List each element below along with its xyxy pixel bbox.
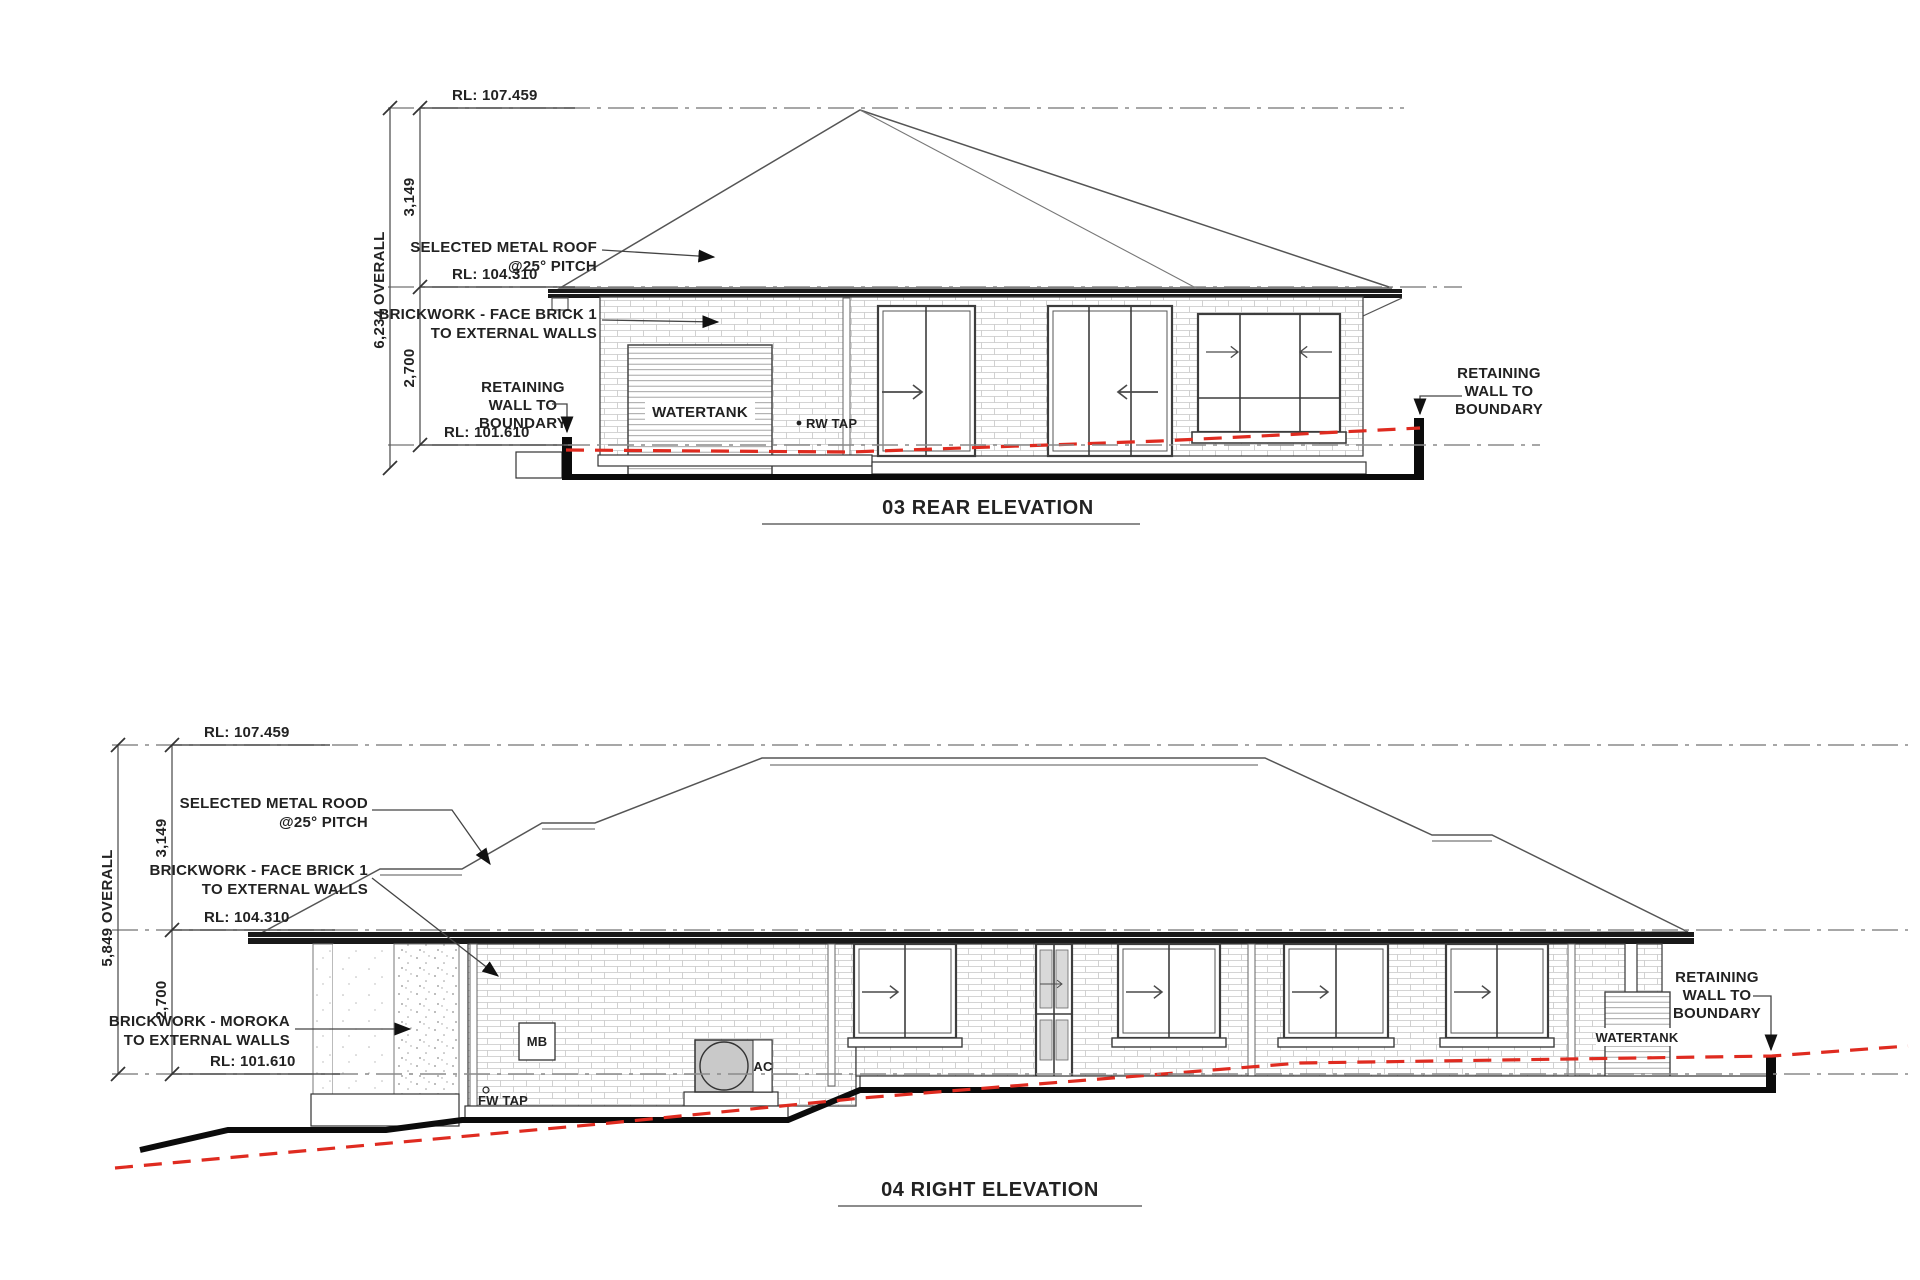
right-elevation-title: 04 RIGHT ELEVATION [881, 1179, 1099, 1201]
right-downpipe-4 [1568, 944, 1575, 1086]
right-porch-pier-left [313, 944, 333, 1094]
right-moroka-pier [394, 944, 459, 1094]
right-meter-box-label: MB [527, 1034, 548, 1049]
right-roof [252, 758, 1688, 938]
right-watertank: WATERTANK [1596, 992, 1679, 1086]
right-rl-bot-label: RL: 101.610 [210, 1053, 296, 1070]
right-ac-unit: AC [684, 1040, 778, 1106]
rear-dim-lower: 2,700 [401, 348, 418, 387]
right-window-d [1440, 944, 1554, 1047]
right-retaining-label-1: RETAINING [1675, 969, 1759, 986]
rear-soffit-right [1363, 298, 1402, 316]
rear-dim-overall: 6,234 OVERALL [371, 231, 388, 348]
right-meter-box: MB [519, 1023, 555, 1060]
right-downpipe-2 [828, 944, 835, 1086]
rear-roof-label-1: SELECTED METAL ROOF [410, 239, 597, 256]
rear-window-3 [1192, 314, 1346, 443]
right-moroka-label-2: TO EXTERNAL WALLS [124, 1032, 290, 1049]
right-window-a [848, 944, 962, 1047]
right-window-c-obscure [1278, 944, 1394, 1047]
rear-dimension-lines [383, 101, 427, 475]
right-watertank-label: WATERTANK [1596, 1030, 1679, 1045]
rear-window-2 [1048, 306, 1172, 456]
right-moroka-label-1: BRICKWORK - MOROKA [109, 1013, 290, 1030]
right-dim-overall: 5,849 OVERALL [99, 849, 116, 966]
rear-roof [560, 110, 1392, 288]
rear-roof-hip-line [860, 110, 1196, 288]
right-elevation-drawing: MB AC WATERTANK [99, 724, 1908, 1206]
rear-retaining-left-label-3: BOUNDARY [479, 415, 567, 432]
right-porch-recess-panel [333, 944, 394, 1094]
rear-retaining-left-label-1: RETAINING [481, 379, 565, 396]
rear-ground-line [566, 474, 1420, 480]
right-entry-door [1036, 944, 1072, 1078]
rear-retaining-wall-left [562, 437, 572, 480]
right-rl-top-label: RL: 107.459 [204, 724, 290, 741]
rear-retaining-right-label-3: BOUNDARY [1455, 401, 1543, 418]
right-roof-leader [372, 810, 490, 864]
rear-rl-top-label: RL: 107.459 [452, 87, 538, 104]
rear-downpipe [843, 298, 850, 456]
rear-step-left [516, 452, 562, 478]
rear-watertank-label: WATERTANK [652, 404, 748, 421]
right-roof-label-2: @25° PITCH [279, 814, 368, 831]
elevations-svg: WATERTANK [0, 0, 1920, 1280]
rear-rw-tap-dot [797, 421, 802, 426]
right-brick-pier-rear [1637, 944, 1662, 992]
rear-brick-label-1: BRICKWORK - FACE BRICK 1 [379, 306, 598, 323]
right-downpipe-3 [1248, 944, 1255, 1086]
rear-retaining-right-label-2: WALL TO [1465, 383, 1534, 400]
right-roof-label-1: SELECTED METAL ROOD [180, 795, 368, 812]
right-rl-mid-label: RL: 104.310 [204, 909, 290, 926]
right-ac-label: AC [753, 1059, 773, 1074]
right-window-b [1112, 944, 1226, 1047]
rear-rw-tap-label: RW TAP [806, 416, 857, 431]
rear-elevation-drawing: WATERTANK [371, 87, 1543, 524]
rear-elevation-title: 03 REAR ELEVATION [882, 497, 1094, 519]
rear-dim-upper: 3,149 [401, 177, 418, 216]
right-retaining-label-2: WALL TO [1683, 987, 1752, 1004]
rear-slab-right [872, 462, 1366, 474]
rear-window-1 [878, 306, 975, 456]
rear-brick-label-2: TO EXTERNAL WALLS [431, 325, 597, 342]
rear-roof-label-2: @25° PITCH [508, 258, 597, 275]
drawing-sheet: WATERTANK [0, 0, 1920, 1280]
rear-slab-left [598, 455, 872, 466]
right-brick-label-2: TO EXTERNAL WALLS [202, 881, 368, 898]
right-retaining-label-3: BOUNDARY [1673, 1005, 1761, 1022]
rear-retaining-left-label-2: WALL TO [489, 397, 558, 414]
right-brick-label-1: BRICKWORK - FACE BRICK 1 [150, 862, 369, 879]
rear-retaining-right-label-1: RETAINING [1457, 365, 1541, 382]
right-downpipe-1 [470, 944, 477, 1120]
right-fw-tap-label: FW TAP [478, 1093, 528, 1108]
right-dim-upper: 3,149 [153, 818, 170, 857]
